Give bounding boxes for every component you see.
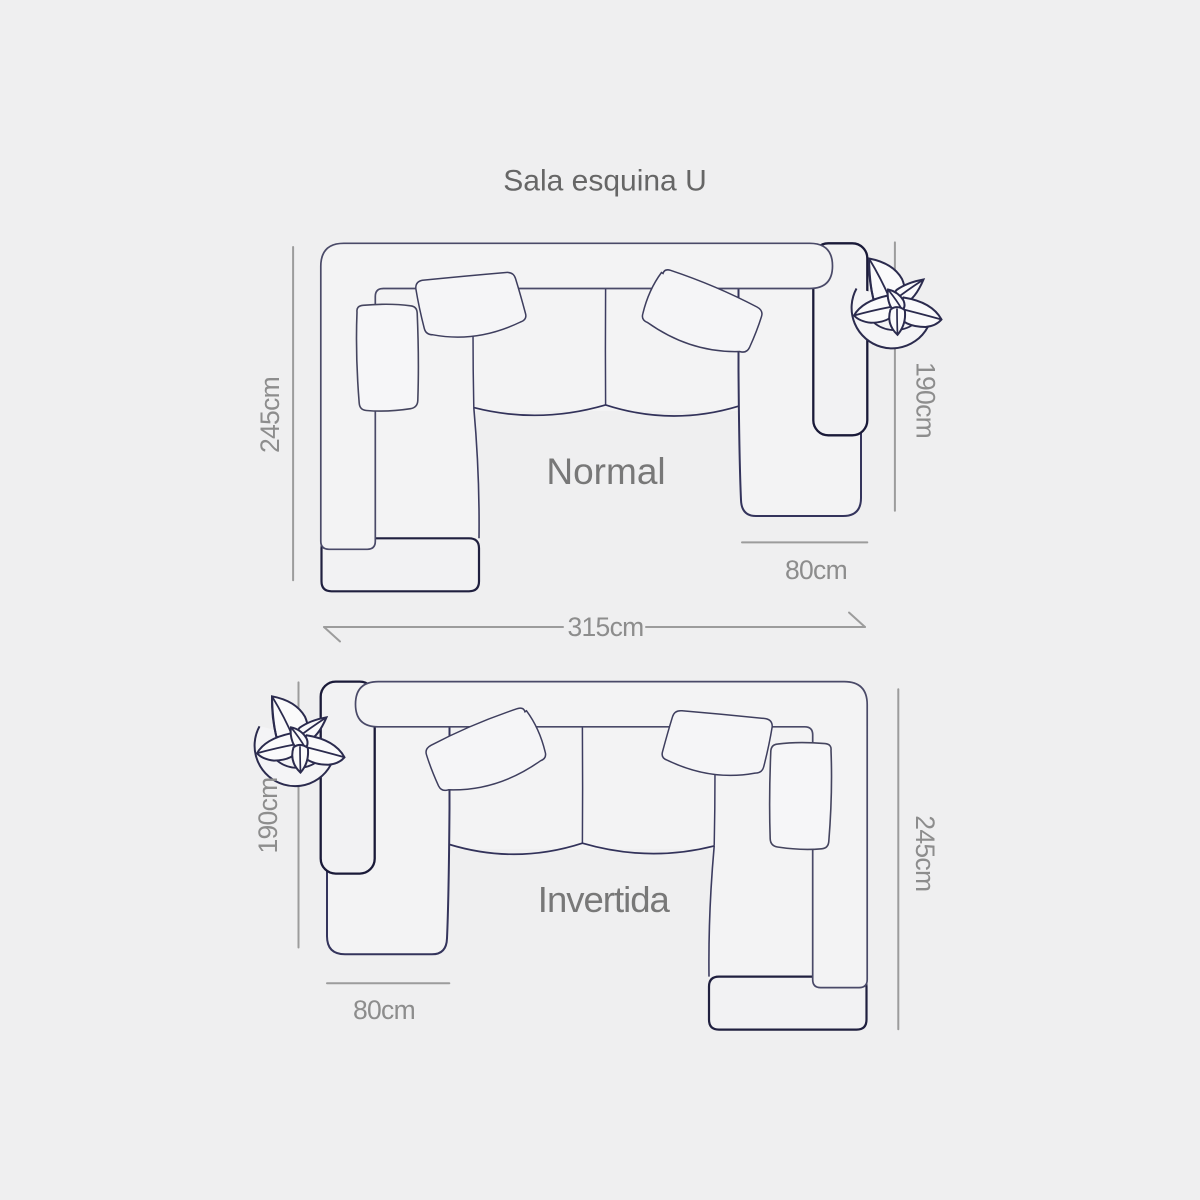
svg-text:Normal: Normal [546, 451, 665, 492]
svg-text:190cm: 190cm [910, 362, 940, 438]
svg-text:Invertida: Invertida [538, 879, 671, 920]
svg-text:Sala esquina U: Sala esquina U [503, 165, 706, 198]
svg-text:80cm: 80cm [785, 555, 847, 585]
svg-text:245cm: 245cm [255, 377, 285, 453]
svg-text:245cm: 245cm [910, 815, 940, 891]
svg-text:190cm: 190cm [253, 777, 283, 853]
svg-text:315cm: 315cm [567, 612, 643, 642]
svg-text:80cm: 80cm [353, 995, 415, 1025]
